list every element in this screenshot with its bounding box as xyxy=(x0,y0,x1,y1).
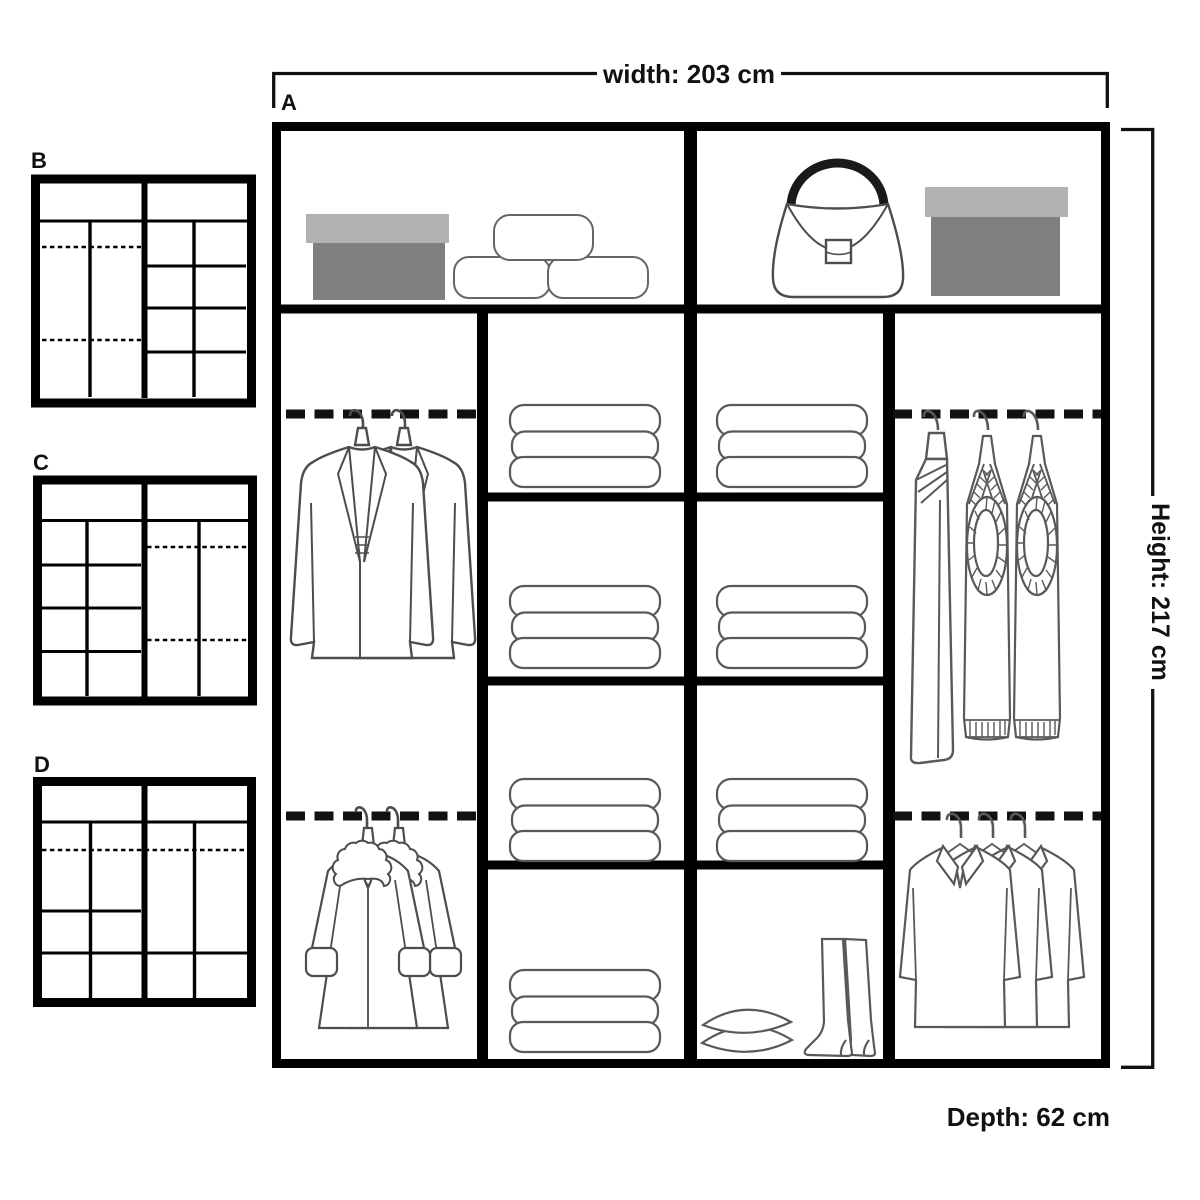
svg-text:B: B xyxy=(31,148,47,173)
svg-text:D: D xyxy=(34,752,50,777)
svg-text:width: 203 cm: width: 203 cm xyxy=(602,59,775,89)
svg-text:C: C xyxy=(33,450,49,475)
svg-text:Depth: 62 cm: Depth: 62 cm xyxy=(947,1102,1110,1132)
svg-text:A: A xyxy=(281,90,297,115)
svg-text:Height: 217 cm: Height: 217 cm xyxy=(1146,503,1174,681)
